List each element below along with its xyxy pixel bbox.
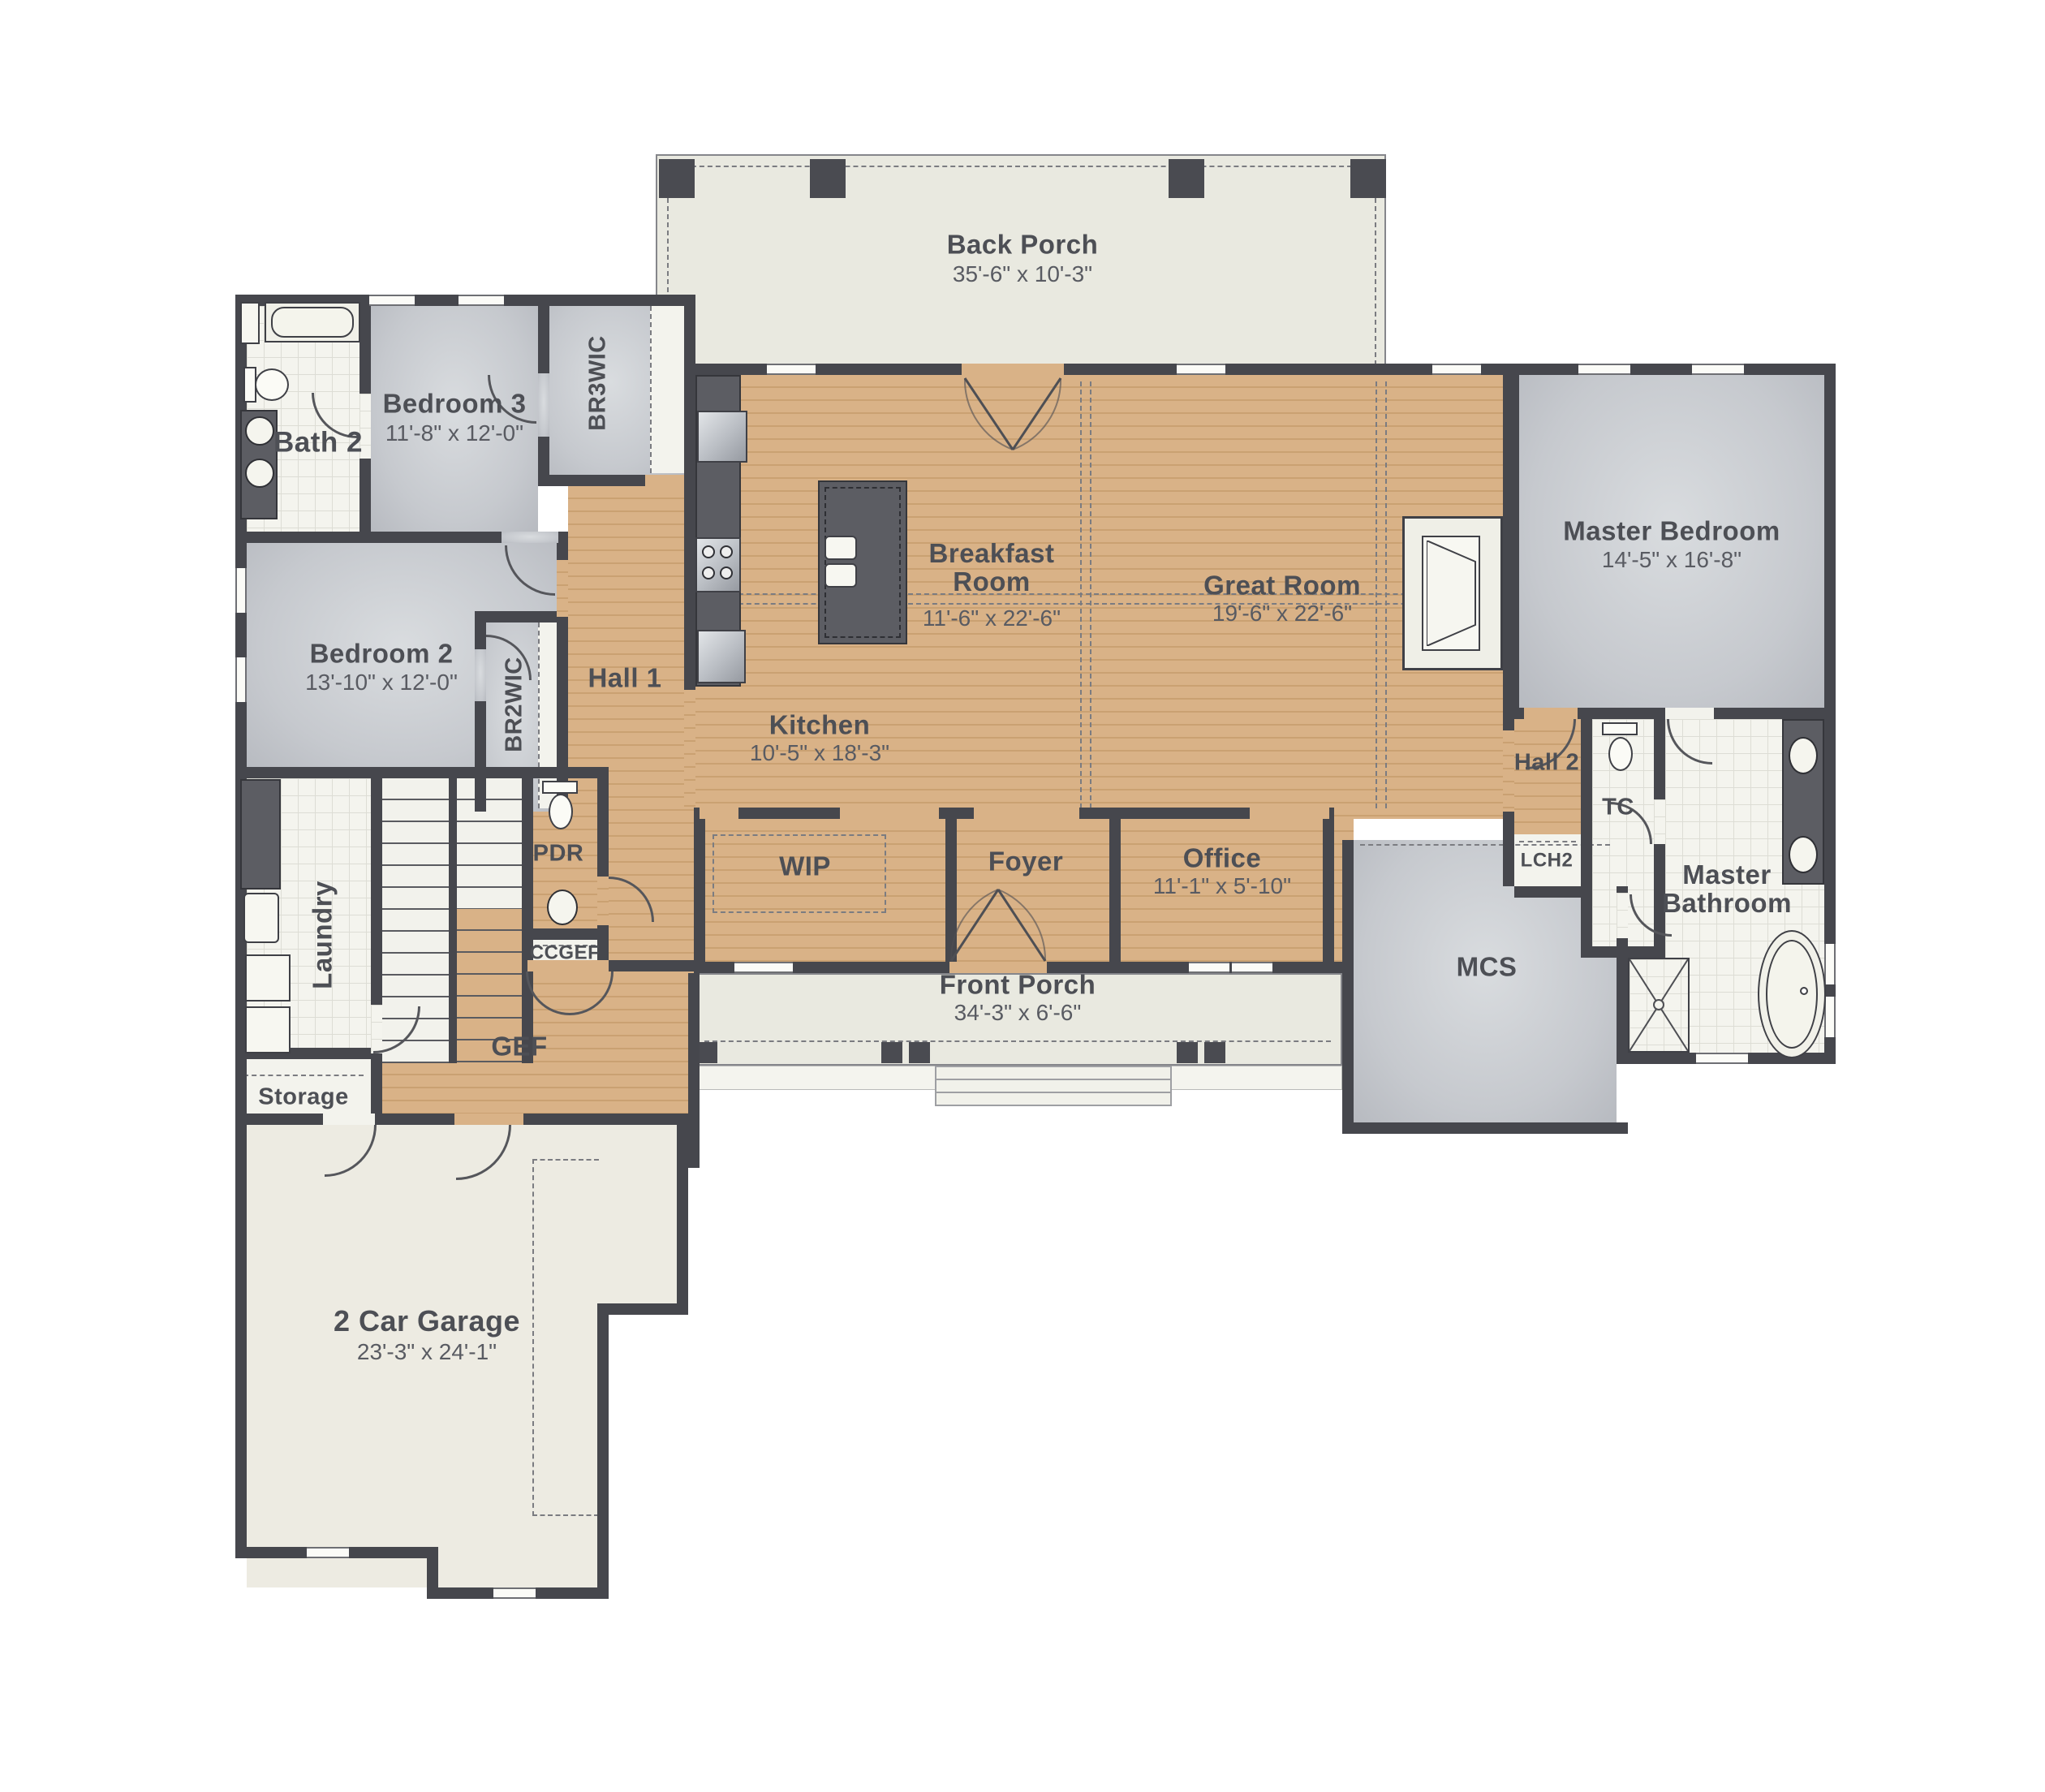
foyer-french-doors [948, 883, 1048, 964]
wall [1342, 1122, 1628, 1134]
wall [1581, 946, 1665, 958]
room-label-ccgef: CCGEF [530, 942, 601, 963]
opening [974, 808, 1079, 819]
mcs-ceiling-line [1360, 844, 1610, 846]
window [1824, 944, 1836, 984]
window [1232, 962, 1272, 973]
wall [597, 1303, 688, 1315]
wall [1109, 819, 1121, 962]
door-opening [557, 560, 568, 617]
wall [694, 819, 705, 962]
door-opening [323, 1114, 375, 1125]
burner [720, 545, 733, 558]
room-label-garage: 2 Car Garage [334, 1306, 520, 1337]
window [235, 657, 247, 702]
room-label-gef: GEF [491, 1033, 547, 1062]
porch-post [1177, 1042, 1198, 1063]
room-label-office: Office [1183, 845, 1262, 873]
room-label-bedroom3: Bedroom 3 [383, 390, 527, 419]
front-porch-edge-line [704, 1040, 1331, 1042]
burner [720, 566, 733, 579]
room-dims-breakfast: 11'-6" x 22'-6" [923, 606, 1061, 631]
door-opening [454, 1114, 523, 1125]
door-opening [475, 649, 486, 701]
wall [1342, 840, 1354, 1134]
sink [547, 890, 578, 925]
door-opening [502, 532, 558, 543]
shower [1628, 958, 1690, 1053]
room-label-front-porch: Front Porch [940, 971, 1096, 1000]
door-opening [597, 877, 609, 925]
wall [684, 364, 1836, 375]
window [1177, 364, 1225, 375]
room-label-wip: WIP [779, 853, 831, 881]
bedroom3-floor [371, 306, 538, 532]
room-label-laundry: Laundry [309, 881, 338, 989]
porch-post [1169, 159, 1204, 198]
ceiling-beam-line [1080, 381, 1082, 808]
room-label-lch2: LCH2 [1521, 850, 1574, 870]
window [767, 364, 816, 375]
refrigerator [697, 411, 747, 463]
window [1578, 364, 1630, 375]
ceiling-beam-line [1385, 381, 1387, 808]
window [307, 1547, 349, 1558]
wall [235, 767, 609, 778]
wall [1581, 719, 1592, 958]
room-label-kitchen: Kitchen [769, 712, 871, 740]
sink [1789, 737, 1818, 774]
room-label-back-porch: Back Porch [947, 231, 1099, 260]
room-label-storage: Storage [258, 1085, 348, 1110]
wall-oven [697, 630, 746, 683]
wall [688, 973, 700, 1168]
front-porch-steps [935, 1066, 1172, 1106]
opening [1503, 730, 1514, 812]
room-label-master-bedroom: Master Bedroom [1563, 518, 1780, 546]
room-label-tc: TC [1602, 795, 1634, 821]
wall [677, 1125, 688, 1303]
room-dims-bedroom2: 13'-10" x 12'-0" [305, 670, 458, 695]
room-label-br3wic: BR3WIC [586, 335, 611, 430]
garage-dashed-area [532, 1159, 599, 1516]
room-dims-back-porch: 35'-6" x 10'-3" [953, 262, 1092, 286]
lch2-shelf-line [1519, 841, 1576, 842]
porch-post [881, 1042, 902, 1063]
room-dims-bedroom3: 11'-8" x 12'-0" [385, 421, 523, 446]
wall [684, 295, 695, 690]
window [459, 295, 504, 306]
room-label-pdr: PDR [533, 842, 584, 867]
sink [245, 416, 274, 446]
wall [371, 1059, 382, 1114]
porch-post [659, 159, 695, 198]
room-dims-garage: 23'-3" x 24'-1" [357, 1340, 497, 1364]
wall [1514, 886, 1581, 898]
stairs-divider-wall [449, 778, 457, 1063]
wall [1323, 819, 1334, 962]
bathtub-basin [271, 307, 354, 338]
dryer [245, 1006, 291, 1053]
room-label-hall2: Hall 2 [1514, 751, 1579, 776]
door-opening [962, 364, 1064, 375]
room-label-master-bathroom: Master Bathroom [1646, 861, 1808, 918]
room-label-bath2: Bath 2 [273, 427, 363, 457]
toilet-bowl [549, 794, 573, 829]
room-label-foyer: Foyer [988, 848, 1063, 877]
porch-french-doors [962, 375, 1064, 453]
room-dims-master-bedroom: 14'-5" x 16'-8" [1602, 548, 1741, 572]
room-dims-great-room: 19'-6" x 22'-6" [1212, 601, 1352, 626]
door-opening [1617, 893, 1628, 938]
door-opening [538, 373, 549, 437]
room-dims-office: 11'-1" x 5'-10" [1153, 874, 1291, 898]
toilet [542, 781, 578, 794]
window [1696, 1053, 1748, 1064]
opening [700, 808, 738, 819]
wall [522, 928, 609, 940]
island-sink [824, 563, 857, 588]
laundry-counter [240, 779, 281, 890]
washer [245, 954, 291, 1002]
window [1692, 364, 1744, 375]
porch-post [1204, 1042, 1225, 1063]
porch-post [810, 159, 846, 198]
floor-plan: Back Porch 35'-6" x 10'-3" Bath 2 Bedroo… [0, 0, 2045, 1792]
laundry-sink [243, 893, 279, 943]
storage-shelf-line [243, 1075, 364, 1076]
window [1432, 364, 1481, 375]
room-label-mcs: MCS [1457, 954, 1518, 982]
wall [522, 767, 533, 1063]
toilet-bowl [1608, 737, 1633, 771]
door-opening [1524, 708, 1578, 719]
room-dims-front-porch: 34'-3" x 6'-6" [954, 1001, 1082, 1025]
toilet [1602, 722, 1638, 735]
porch-post [1350, 159, 1386, 198]
door-opening [1665, 708, 1714, 719]
bath2-niche [240, 302, 260, 344]
toilet-bowl [255, 368, 289, 401]
room-label-breakfast: Breakfast Room [909, 540, 1075, 597]
wall [1503, 375, 1519, 708]
island-sink [824, 536, 857, 560]
floor-sliver [684, 690, 695, 808]
window [734, 962, 793, 973]
master-tub-basin [1766, 940, 1818, 1049]
opening [1250, 808, 1329, 819]
wall [597, 1315, 609, 1599]
room-dims-kitchen: 10'-5" x 18'-3" [750, 741, 889, 765]
room-label-hall1: Hall 1 [588, 665, 661, 693]
ceiling-beam-line [1090, 381, 1091, 808]
room-label-bedroom2: Bedroom 2 [310, 640, 454, 669]
burner [702, 566, 715, 579]
opening [645, 475, 684, 486]
range [695, 537, 741, 592]
window [1189, 962, 1229, 973]
room-label-great-room: Great Room [1203, 572, 1361, 601]
door-opening [1654, 799, 1665, 844]
tv-icon [1427, 541, 1477, 646]
window [493, 1587, 536, 1599]
room-label-br2wic: BR2WIC [502, 657, 527, 752]
ceiling-beam-line [1376, 381, 1377, 808]
br3wic-shelf [650, 306, 684, 473]
window [235, 568, 247, 613]
window [369, 295, 415, 306]
burner [702, 545, 715, 558]
porch-post [909, 1042, 930, 1063]
window [1824, 997, 1836, 1037]
sink [245, 459, 274, 488]
tub-faucet [1800, 987, 1808, 995]
opening [840, 808, 939, 819]
wall [475, 611, 568, 622]
island-dashed-edge [824, 487, 901, 638]
